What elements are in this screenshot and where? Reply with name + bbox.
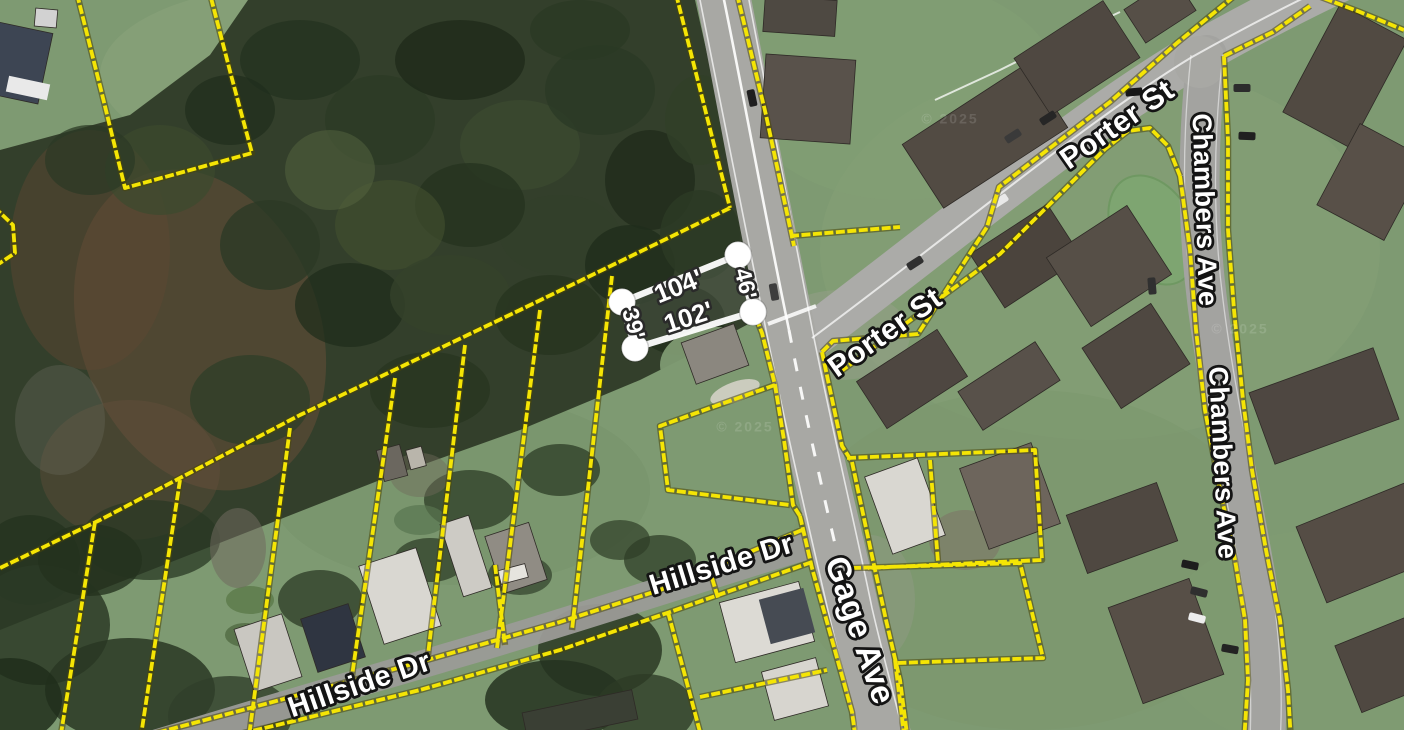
car xyxy=(1238,132,1255,141)
building xyxy=(34,8,57,28)
building xyxy=(760,54,856,144)
watermark: © 2025 xyxy=(716,419,773,435)
car xyxy=(1147,277,1156,295)
map-canvas[interactable]: © 2025 © 2025 © 2025 104' 102' 39' 46' P… xyxy=(0,0,1404,730)
watermark: © 2025 xyxy=(1211,321,1268,337)
junction-pavement xyxy=(1174,36,1226,88)
parcel-corner-handle[interactable] xyxy=(740,299,767,326)
watermark: © 2025 xyxy=(921,111,978,127)
parcel-corner-handle[interactable] xyxy=(725,242,752,269)
satellite-map[interactable]: © 2025 © 2025 © 2025 104' 102' 39' 46' P… xyxy=(0,0,1404,730)
car xyxy=(1234,84,1251,92)
building xyxy=(763,0,837,36)
